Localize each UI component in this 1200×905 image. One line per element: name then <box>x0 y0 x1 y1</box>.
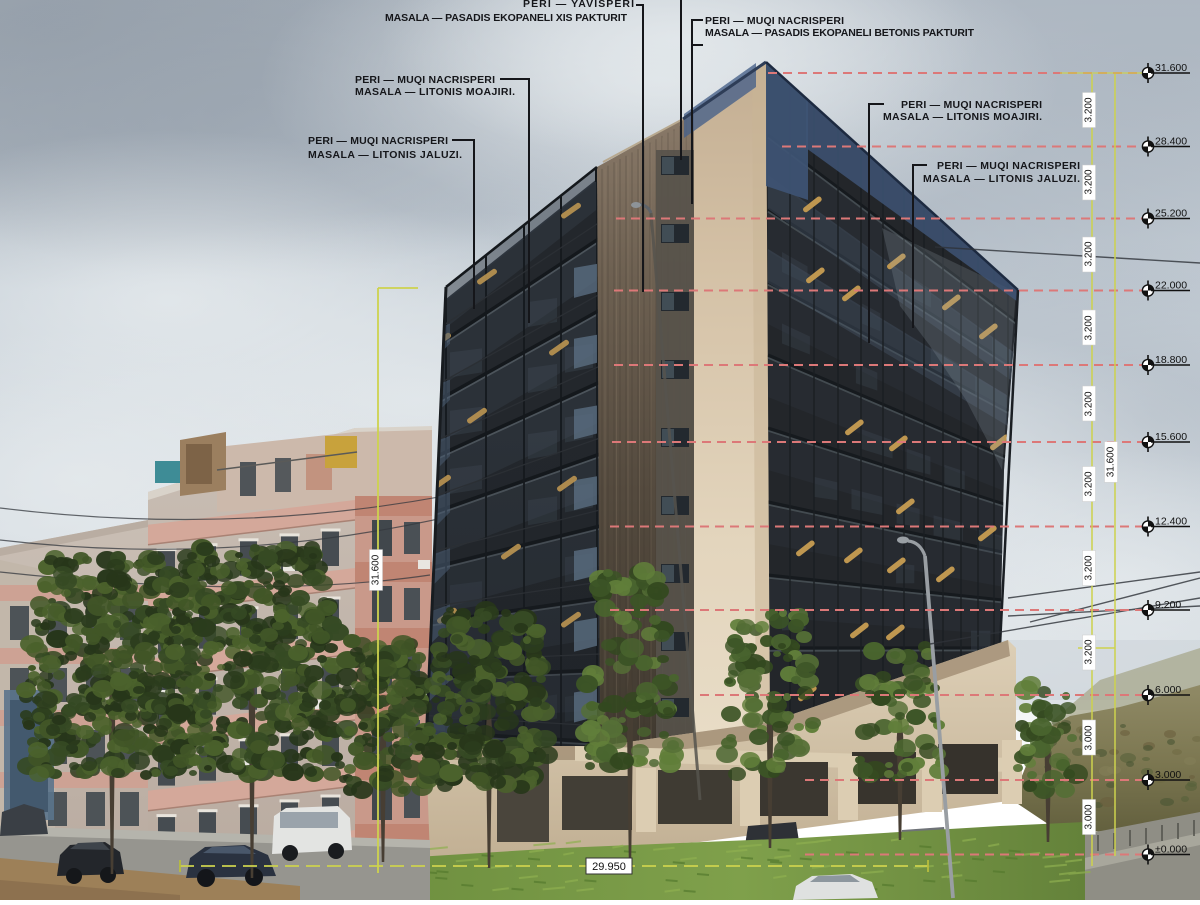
svg-text:3.200: 3.200 <box>1084 169 1095 194</box>
svg-text:PERI — YAVISPERI: PERI — YAVISPERI <box>523 0 634 10</box>
svg-text:MASALA — LITONIS JALUZI.: MASALA — LITONIS JALUZI. <box>308 149 462 161</box>
svg-text:MASALA — PASADIS EKOPANELI XIS: MASALA — PASADIS EKOPANELI XIS PAKTURIT <box>385 12 628 24</box>
svg-text:3.200: 3.200 <box>1084 555 1095 580</box>
svg-text:3.200: 3.200 <box>1084 97 1095 122</box>
svg-text:PERI — MUQI NACRISPERI: PERI — MUQI NACRISPERI <box>308 135 448 147</box>
svg-text:22.000: 22.000 <box>1155 280 1187 292</box>
svg-text:±0.000: ±0.000 <box>1155 844 1187 856</box>
svg-text:PERI — MUQI NACRISPERI: PERI — MUQI NACRISPERI <box>705 15 844 27</box>
svg-text:28.400: 28.400 <box>1155 136 1187 148</box>
svg-text:6.000: 6.000 <box>1155 684 1181 696</box>
svg-text:MASALA — LITONIS MOAJIRI.: MASALA — LITONIS MOAJIRI. <box>883 111 1042 123</box>
svg-text:12.400: 12.400 <box>1155 516 1187 528</box>
svg-text:PERI — MUQI NACRISPERI: PERI — MUQI NACRISPERI <box>355 74 495 86</box>
svg-text:3.200: 3.200 <box>1084 391 1095 416</box>
svg-text:15.600: 15.600 <box>1155 431 1187 443</box>
svg-text:MASALA — PASADIS EKOPANELI BET: MASALA — PASADIS EKOPANELI BETONIS PAKTU… <box>705 27 975 39</box>
svg-text:31.600: 31.600 <box>1106 446 1117 477</box>
svg-text:PERI — MUQI NACRISPERI: PERI — MUQI NACRISPERI <box>901 99 1042 111</box>
svg-text:PERI — MUQI NACRISPERI: PERI — MUQI NACRISPERI <box>937 160 1080 172</box>
svg-text:25.200: 25.200 <box>1155 208 1187 220</box>
svg-text:3.000: 3.000 <box>1155 769 1181 781</box>
svg-text:3.200: 3.200 <box>1084 471 1095 496</box>
svg-text:3.000: 3.000 <box>1084 725 1095 750</box>
svg-text:29.950: 29.950 <box>592 861 626 873</box>
svg-text:31.600: 31.600 <box>1155 62 1187 74</box>
svg-text:MASALA — LITONIS JALUZI.: MASALA — LITONIS JALUZI. <box>923 173 1080 185</box>
svg-text:3.200: 3.200 <box>1084 315 1095 340</box>
svg-text:9.200: 9.200 <box>1155 599 1181 611</box>
svg-text:3.200: 3.200 <box>1084 241 1095 266</box>
svg-text:3.000: 3.000 <box>1084 804 1095 829</box>
svg-text:31.600: 31.600 <box>371 554 382 585</box>
svg-text:18.800: 18.800 <box>1155 354 1187 366</box>
svg-text:MASALA — LITONIS MOAJIRI.: MASALA — LITONIS MOAJIRI. <box>355 86 515 98</box>
svg-text:3.200: 3.200 <box>1084 639 1095 664</box>
